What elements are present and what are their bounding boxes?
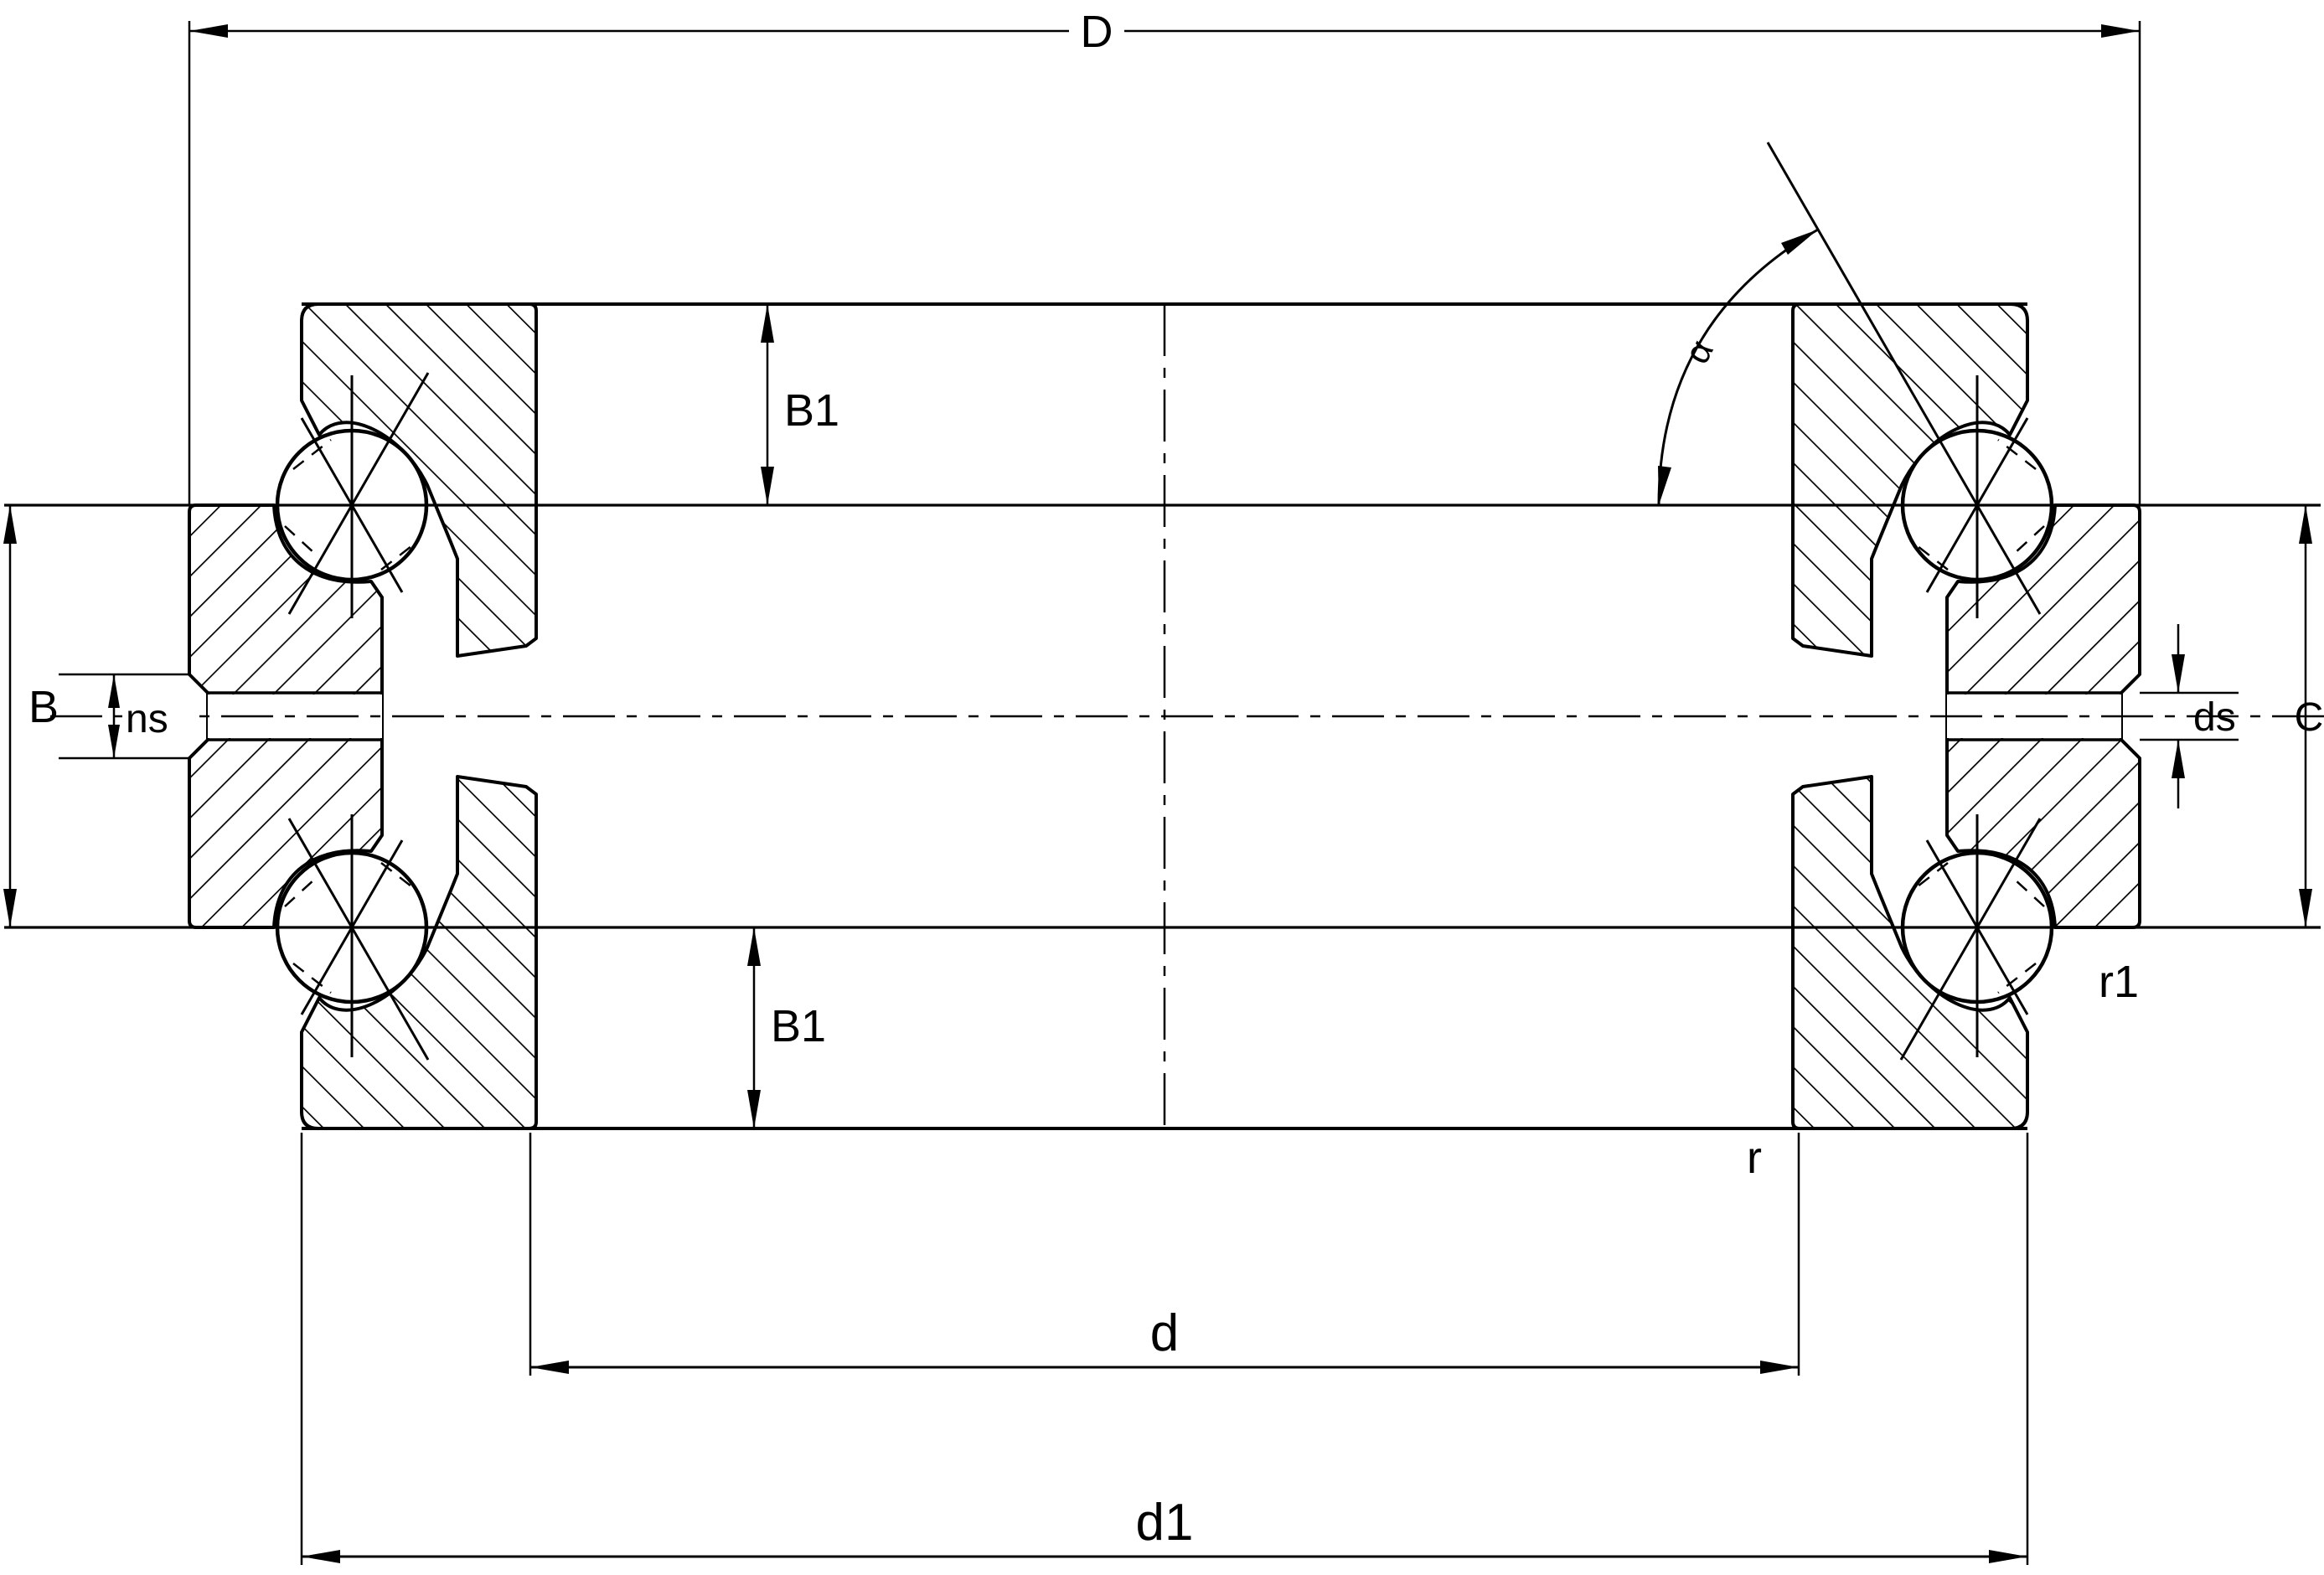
- dim-label-d: d: [1150, 1304, 1179, 1362]
- dim-label-D: D: [1081, 7, 1113, 57]
- bearing-cross-section-drawing: D B ns B1 B1 ds: [0, 0, 2324, 1575]
- dim-label-B1-bottom: B1: [771, 1001, 826, 1051]
- dim-label-ns: ns: [126, 697, 168, 741]
- dim-label-r1: r1: [2099, 957, 2139, 1007]
- dim-label-B: B: [28, 682, 59, 732]
- dim-label-B1-top: B1: [784, 385, 839, 436]
- dim-label-ds: ds: [2193, 695, 2236, 740]
- dim-label-C: C: [2295, 695, 2324, 740]
- drawing-canvas: D B ns B1 B1 ds: [0, 0, 2324, 1575]
- dim-label-r: r: [1747, 1133, 1762, 1183]
- dim-label-d1: d1: [1136, 1494, 1194, 1552]
